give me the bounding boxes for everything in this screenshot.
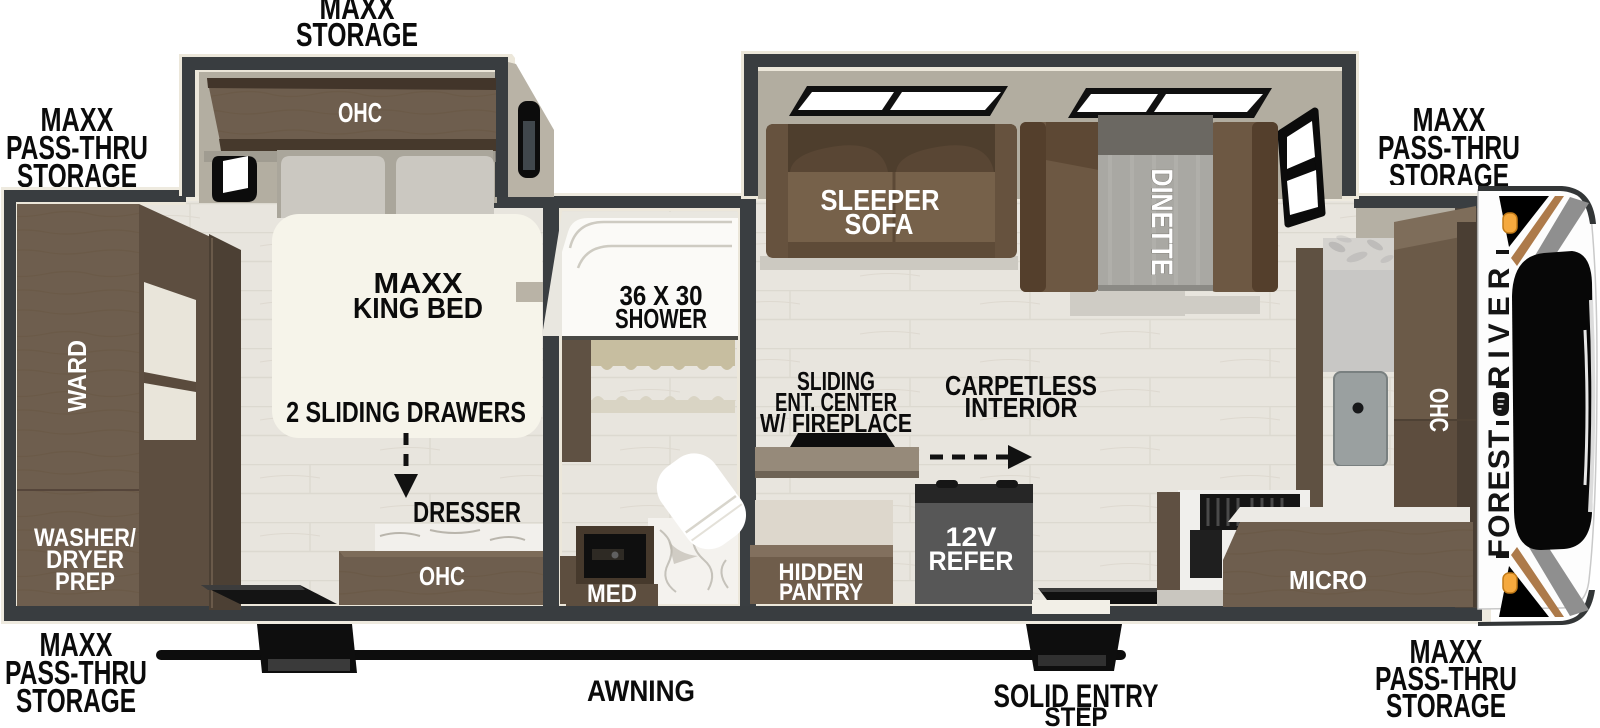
- svg-text:AWNING: AWNING: [587, 673, 695, 707]
- svg-text:SOFA: SOFA: [845, 207, 914, 240]
- svg-text:RIVER: RIVER: [1483, 261, 1516, 388]
- svg-text:PREP: PREP: [55, 568, 115, 596]
- svg-text:MED: MED: [587, 580, 637, 608]
- svg-text:INTERIOR: INTERIOR: [965, 393, 1078, 423]
- svg-text:OHC: OHC: [1424, 388, 1453, 432]
- svg-text:STORAGE: STORAGE: [16, 684, 136, 720]
- svg-text:FOREST: FOREST: [1483, 429, 1516, 558]
- svg-text:OHC: OHC: [419, 562, 465, 591]
- svg-text:STEP: STEP: [1044, 703, 1107, 728]
- svg-text:KING BED: KING BED: [353, 292, 483, 324]
- svg-text:SHOWER: SHOWER: [615, 304, 707, 335]
- svg-text:OHC: OHC: [338, 98, 382, 129]
- svg-text:WARD: WARD: [64, 340, 92, 412]
- svg-text:2 SLIDING DRAWERS: 2 SLIDING DRAWERS: [286, 396, 526, 429]
- svg-text:MICRO: MICRO: [1289, 567, 1367, 595]
- svg-text:STORAGE: STORAGE: [1386, 689, 1506, 725]
- svg-text:DINETTE: DINETTE: [1145, 169, 1179, 276]
- svg-text:PANTRY: PANTRY: [779, 579, 863, 606]
- svg-text:STORAGE: STORAGE: [296, 18, 418, 54]
- svg-text:REFER: REFER: [929, 545, 1014, 576]
